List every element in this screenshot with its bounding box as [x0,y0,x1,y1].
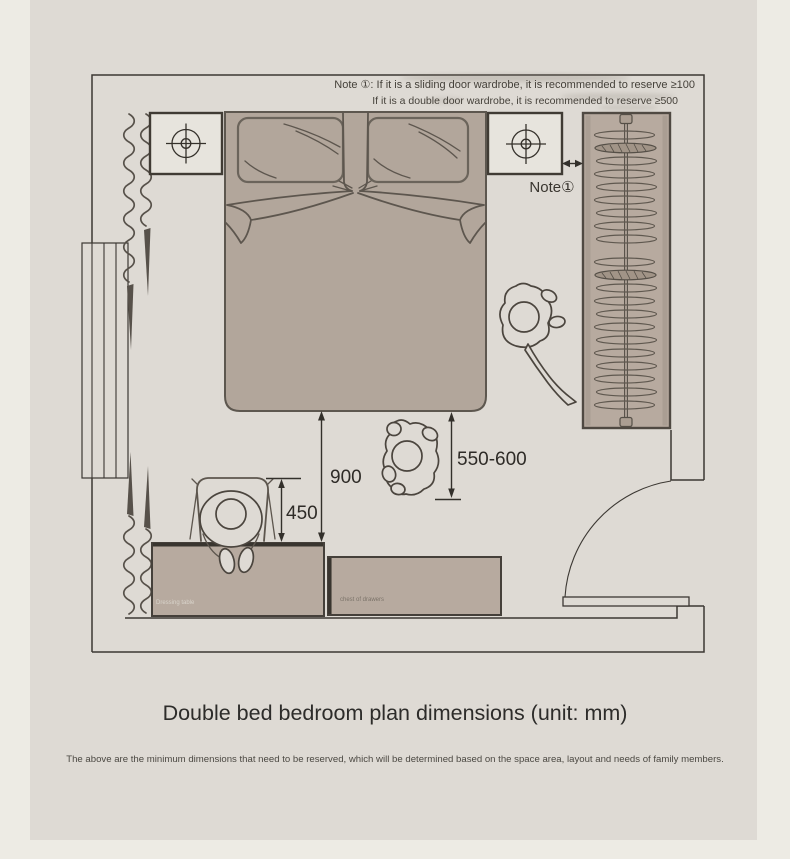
nightstand-right [488,113,562,174]
wardrobe [583,113,670,428]
wardrobe-gap-arrow [562,160,583,167]
person-reaching-figure [500,284,576,406]
dimension-900-label: 900 [330,468,362,489]
nightstand-left [150,113,222,174]
window [82,243,128,478]
bedroom-floor-plan [0,0,790,859]
note-line-1: Note ①: If it is a sliding door wardrobe… [300,79,695,91]
floor-plan-page: Note ①: If it is a sliding door wardrobe… [0,0,790,859]
entry-door [563,481,689,606]
page-subtitle: The above are the minimum dimensions tha… [0,755,790,766]
door-swing-arc-icon [565,481,671,597]
chest-of-drawers [328,557,501,615]
chest-of-drawers-label: chest of drawers [340,597,384,604]
page-title: Double bed bedroom plan dimensions (unit… [0,702,790,726]
person-walking-figure [380,420,440,496]
note-line-2: If it is a double door wardrobe, it is r… [300,96,678,108]
dimension-arrow-900 [318,411,325,542]
dimension-450-label: 450 [286,504,318,525]
dimension-550-600-label: 550-600 [457,450,527,471]
pillow-left [238,118,343,182]
door-leaf [563,597,689,606]
note-pointer-label: Note① [512,180,592,197]
hanger-with-garment [595,143,656,153]
double-bed [225,112,486,411]
dressing-table-label: Dressing table [156,600,194,607]
hanger-with-garment [595,270,656,280]
